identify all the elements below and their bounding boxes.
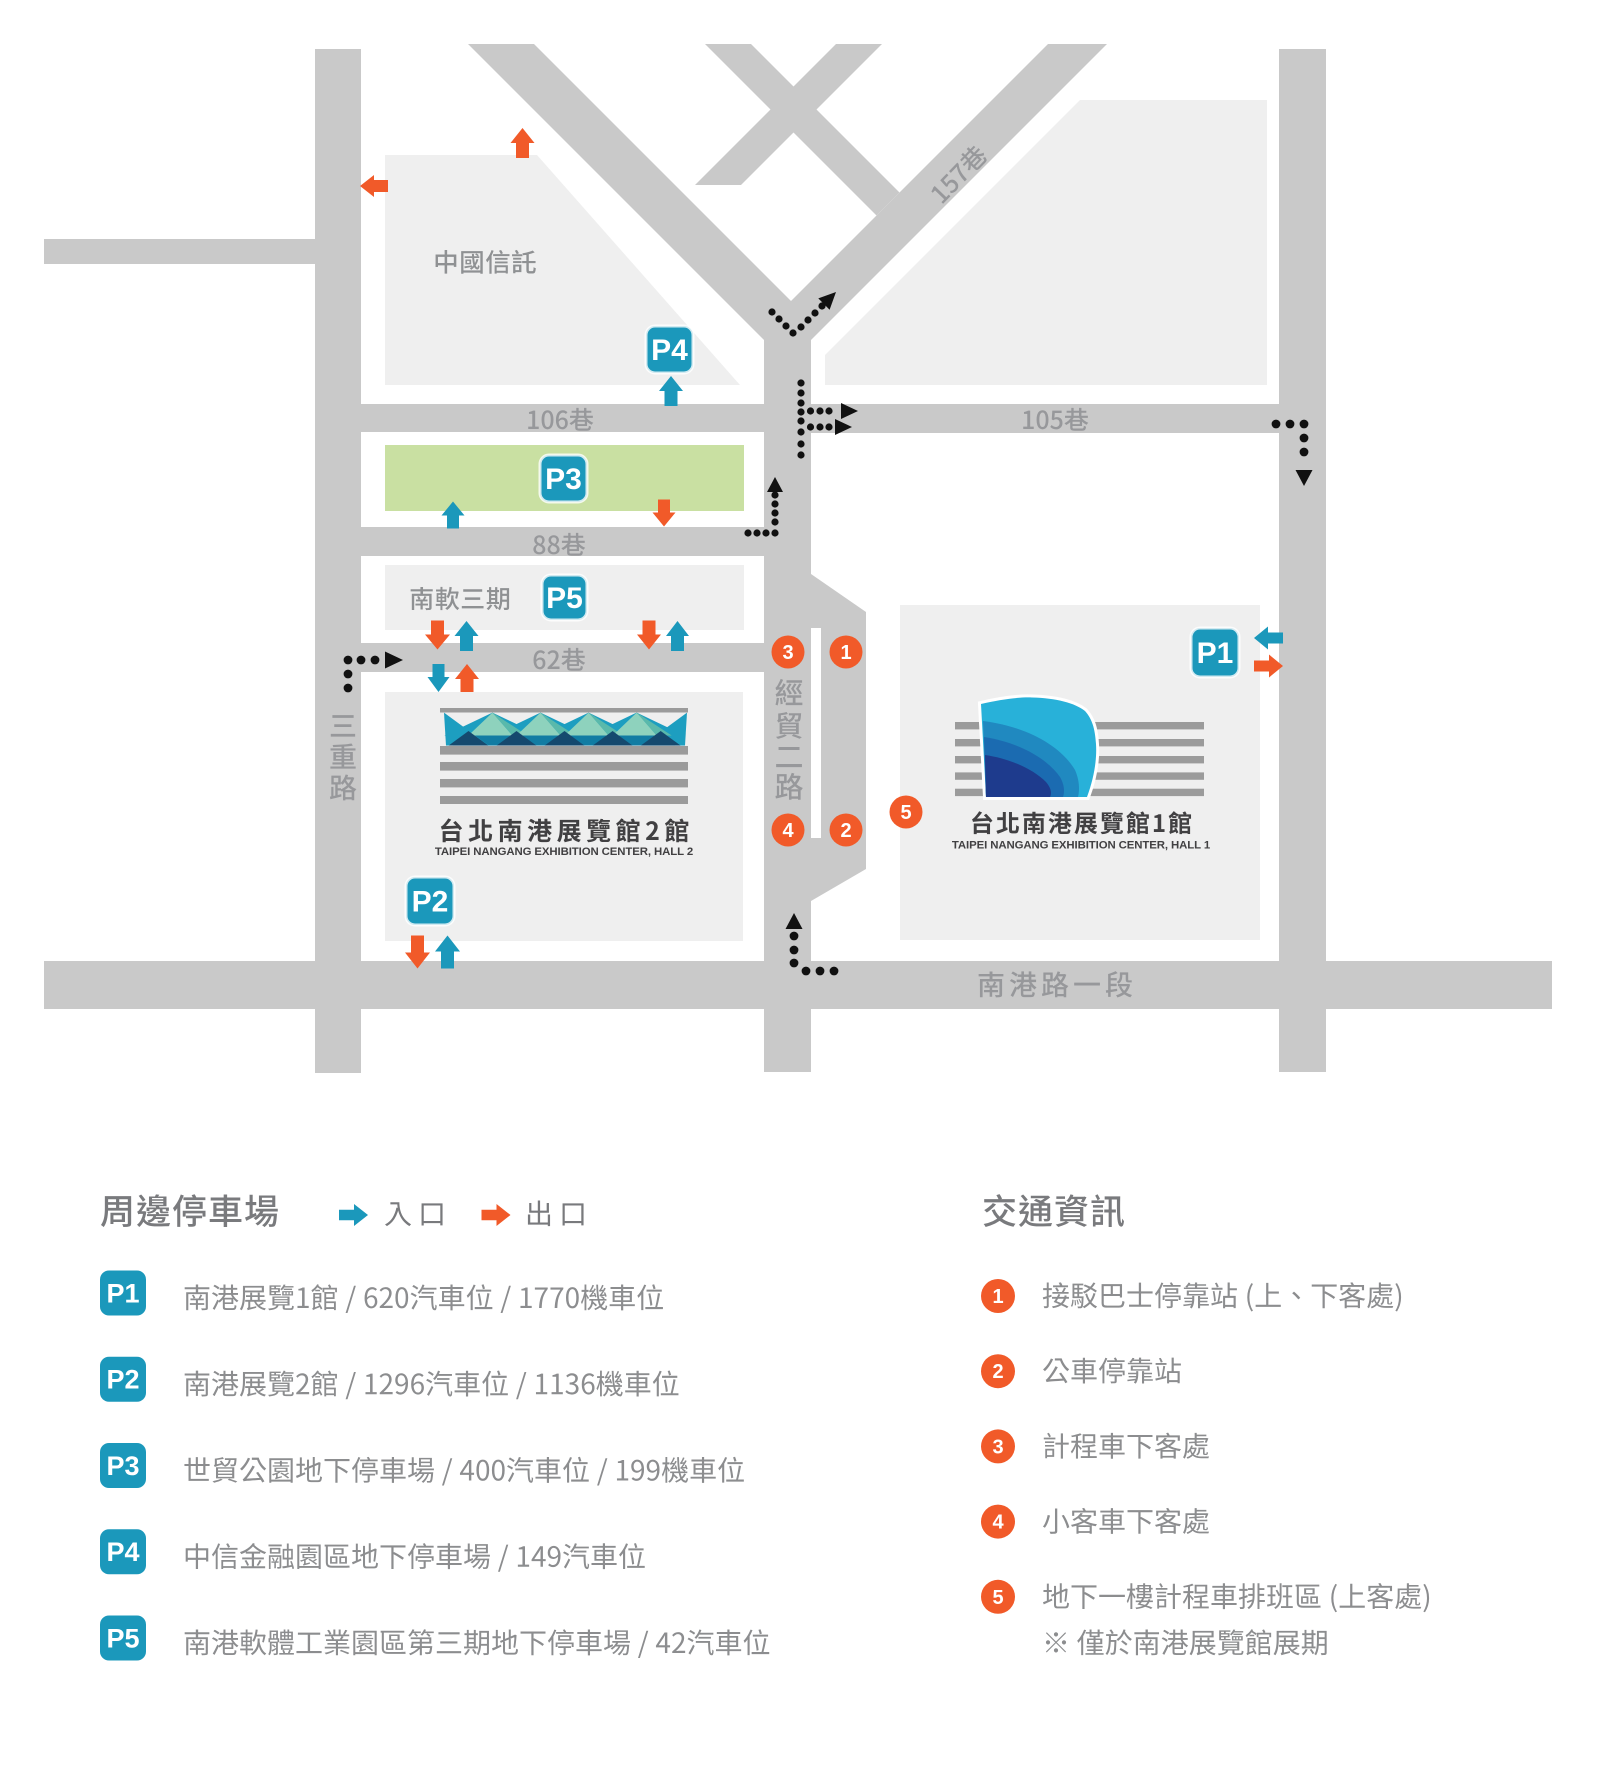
svg-text:P4: P4: [651, 334, 688, 367]
svg-text:P4: P4: [106, 1537, 139, 1567]
svg-text:1: 1: [992, 1286, 1003, 1308]
svg-text:P5: P5: [546, 582, 583, 615]
svg-text:P2: P2: [412, 886, 449, 919]
svg-text:5: 5: [900, 802, 911, 824]
svg-text:P1: P1: [1197, 637, 1234, 670]
svg-text:3: 3: [782, 642, 793, 664]
svg-text:P5: P5: [106, 1623, 139, 1653]
svg-text:TAIPEI NANGANG EXHIBITION CENT: TAIPEI NANGANG EXHIBITION CENTER, HALL 1: [952, 840, 1211, 852]
svg-text:TAIPEI NANGANG EXHIBITION CENT: TAIPEI NANGANG EXHIBITION CENTER, HALL 2: [435, 846, 693, 858]
svg-text:4: 4: [782, 820, 794, 842]
svg-text:1: 1: [840, 642, 851, 664]
svg-text:P2: P2: [106, 1365, 139, 1395]
svg-text:P3: P3: [106, 1451, 139, 1481]
svg-text:P3: P3: [545, 463, 582, 496]
svg-text:4: 4: [992, 1512, 1004, 1534]
svg-text:2: 2: [992, 1361, 1003, 1383]
svg-text:3: 3: [992, 1436, 1003, 1458]
svg-text:2: 2: [840, 820, 851, 842]
svg-text:5: 5: [992, 1587, 1003, 1609]
svg-text:P1: P1: [106, 1278, 139, 1308]
